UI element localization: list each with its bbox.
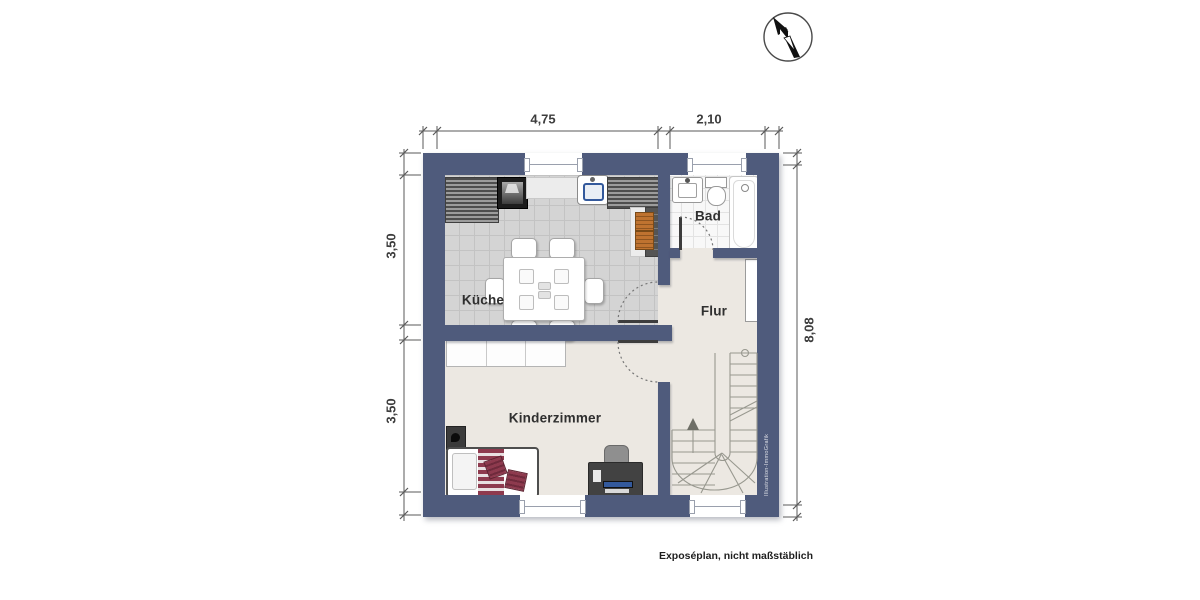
dim-left-lower: 3,50 — [384, 398, 399, 423]
dim-top-left: 4,75 — [530, 112, 555, 127]
dimension-lines — [0, 0, 1200, 600]
dim-left-upper: 3,50 — [384, 233, 399, 258]
floorplan-canvas: Küche Bad Flur Kinderzimmer 4,75 2,10 3,… — [0, 0, 1200, 600]
footer-note: Exposéplan, nicht maßstäblich — [659, 550, 813, 562]
dim-top-right: 2,10 — [696, 112, 721, 127]
watermark-text: Illustration-ImmoGrafik — [764, 426, 770, 496]
dim-right: 8,08 — [802, 317, 817, 342]
